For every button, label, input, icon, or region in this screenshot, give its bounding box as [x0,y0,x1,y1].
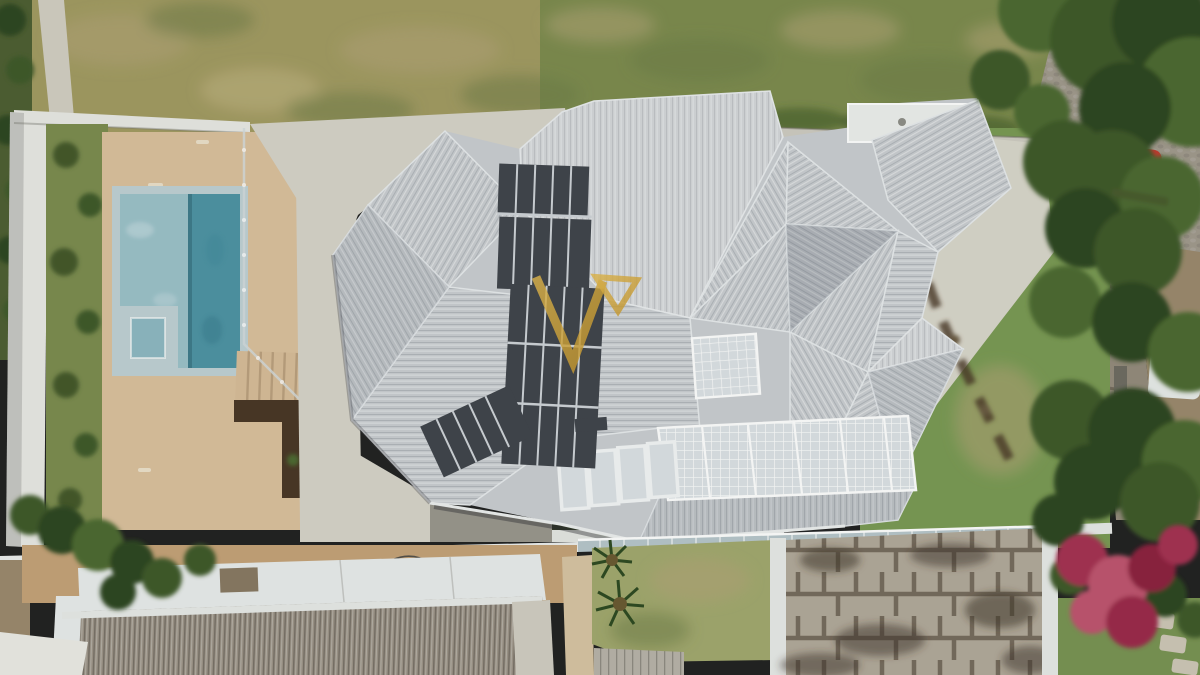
aerial-photo [0,0,1200,675]
scene-svg [0,0,1200,675]
photo-vignette [0,0,1200,675]
